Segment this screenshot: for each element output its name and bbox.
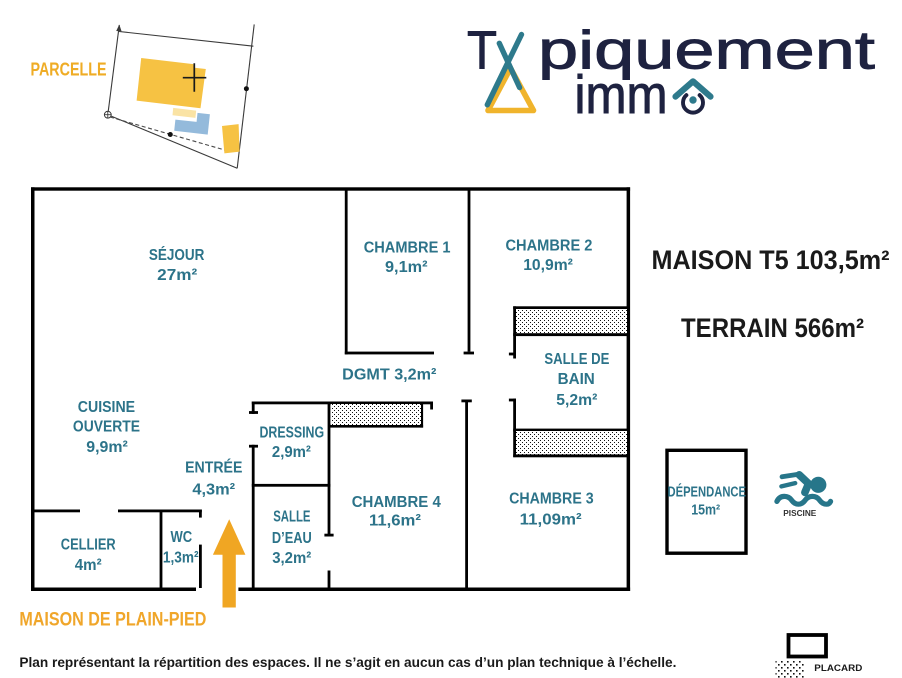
svg-text:CHAMBRE 4: CHAMBRE 4: [352, 494, 441, 511]
svg-text:10,9m²: 10,9m²: [523, 257, 573, 274]
svg-text:SÉJOUR: SÉJOUR: [149, 245, 205, 264]
svg-text:3,2m²: 3,2m²: [272, 550, 311, 567]
svg-text:SALLE: SALLE: [273, 509, 311, 526]
svg-text:CHAMBRE 1: CHAMBRE 1: [364, 239, 451, 256]
svg-text:9,1m²: 9,1m²: [385, 259, 428, 276]
svg-text:D’EAU: D’EAU: [272, 530, 312, 547]
svg-text:CUISINE: CUISINE: [78, 399, 136, 416]
svg-text:SALLE DE: SALLE DE: [544, 351, 609, 368]
svg-text:CHAMBRE 2: CHAMBRE 2: [506, 238, 593, 255]
svg-text:MAISON T5 103,5m²: MAISON T5 103,5m²: [652, 245, 890, 275]
svg-text:2,9m²: 2,9m²: [272, 444, 311, 461]
svg-text:27m²: 27m²: [157, 267, 197, 284]
svg-text:TERRAIN 566m²: TERRAIN 566m²: [681, 313, 864, 343]
svg-text:PARCELLE: PARCELLE: [31, 59, 107, 80]
svg-text:Plan représentant la répartiti: Plan représentant la répartition des esp…: [19, 655, 676, 671]
svg-text:DÉPENDANCE: DÉPENDANCE: [668, 484, 747, 501]
svg-text:WC: WC: [171, 529, 193, 546]
svg-text:DRESSING: DRESSING: [260, 424, 325, 441]
svg-text:4,3m²: 4,3m²: [192, 482, 235, 499]
svg-text:ENTRÉE: ENTRÉE: [185, 458, 243, 477]
svg-text:11,6m²: 11,6m²: [369, 513, 421, 530]
svg-text:CHAMBRE 3: CHAMBRE 3: [509, 491, 594, 508]
svg-text:BAIN: BAIN: [558, 371, 595, 388]
svg-text:9,9m²: 9,9m²: [86, 439, 128, 456]
svg-text:T: T: [467, 21, 497, 81]
svg-text:CELLIER: CELLIER: [61, 537, 116, 554]
svg-text:1,3m²: 1,3m²: [163, 550, 199, 567]
svg-text:4m²: 4m²: [75, 557, 102, 574]
svg-text:DGMT 3,2m²: DGMT 3,2m²: [342, 367, 436, 384]
svg-text:MAISON DE PLAIN-PIED: MAISON DE PLAIN-PIED: [19, 609, 206, 630]
svg-text:5,2m²: 5,2m²: [556, 392, 597, 409]
svg-text:15m²: 15m²: [691, 503, 720, 519]
svg-text:OUVERTE: OUVERTE: [73, 418, 140, 435]
svg-text:11,09m²: 11,09m²: [520, 512, 582, 529]
svg-text:imm: imm: [575, 65, 668, 125]
svg-text:PISCINE: PISCINE: [783, 509, 817, 518]
svg-text:PLACARD: PLACARD: [814, 663, 862, 674]
